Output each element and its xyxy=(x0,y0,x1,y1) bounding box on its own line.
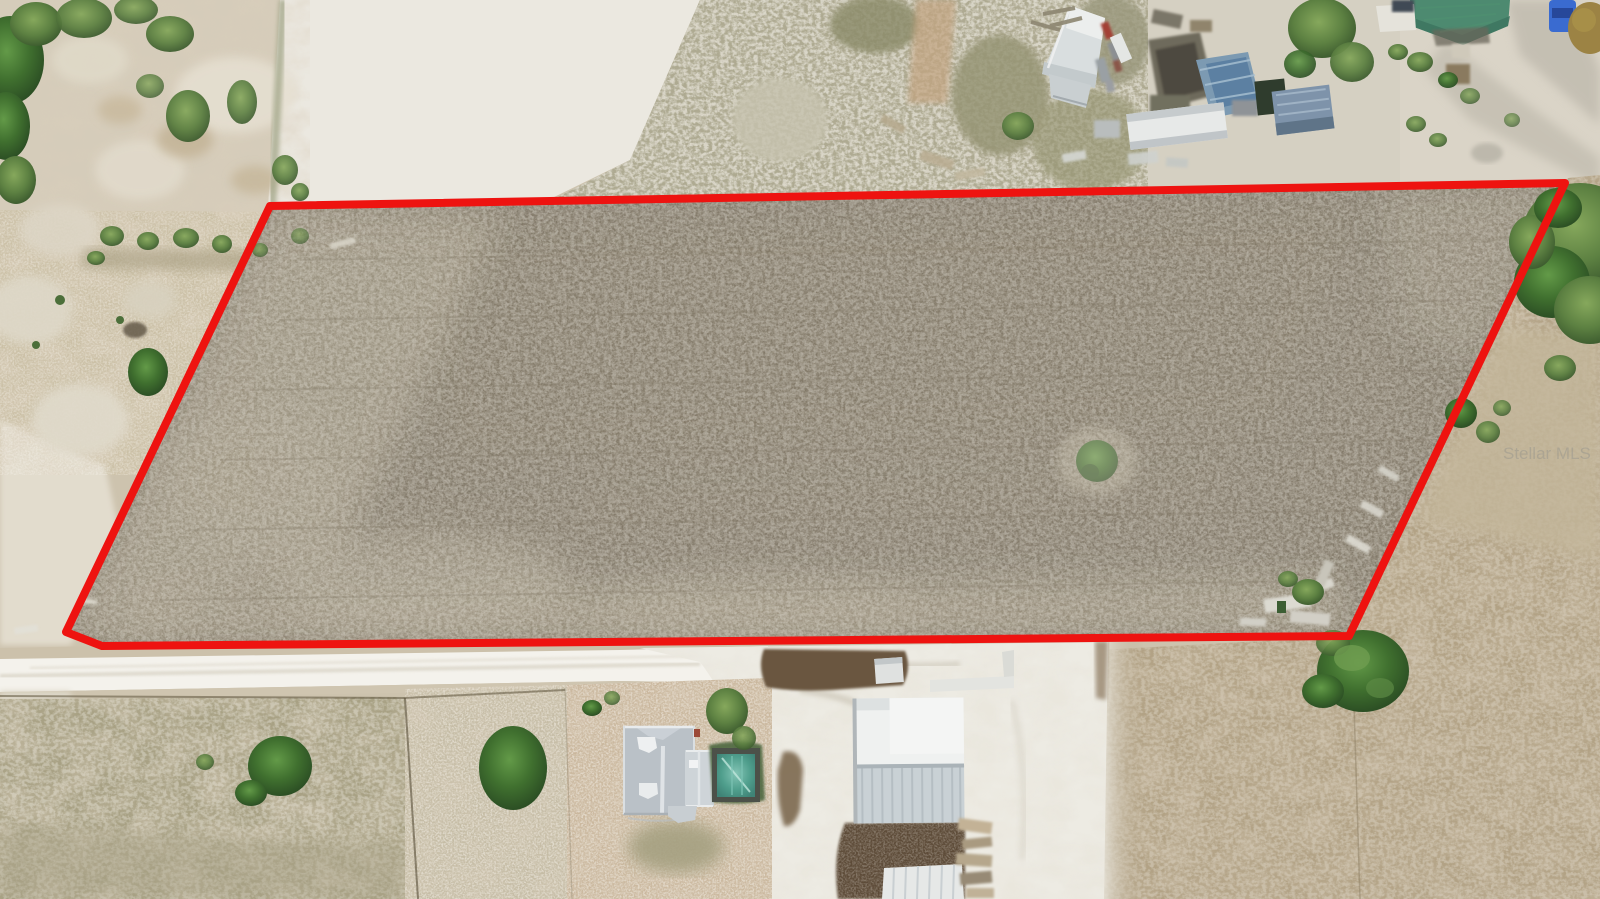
svg-text:Stellar MLS: Stellar MLS xyxy=(1503,444,1591,463)
